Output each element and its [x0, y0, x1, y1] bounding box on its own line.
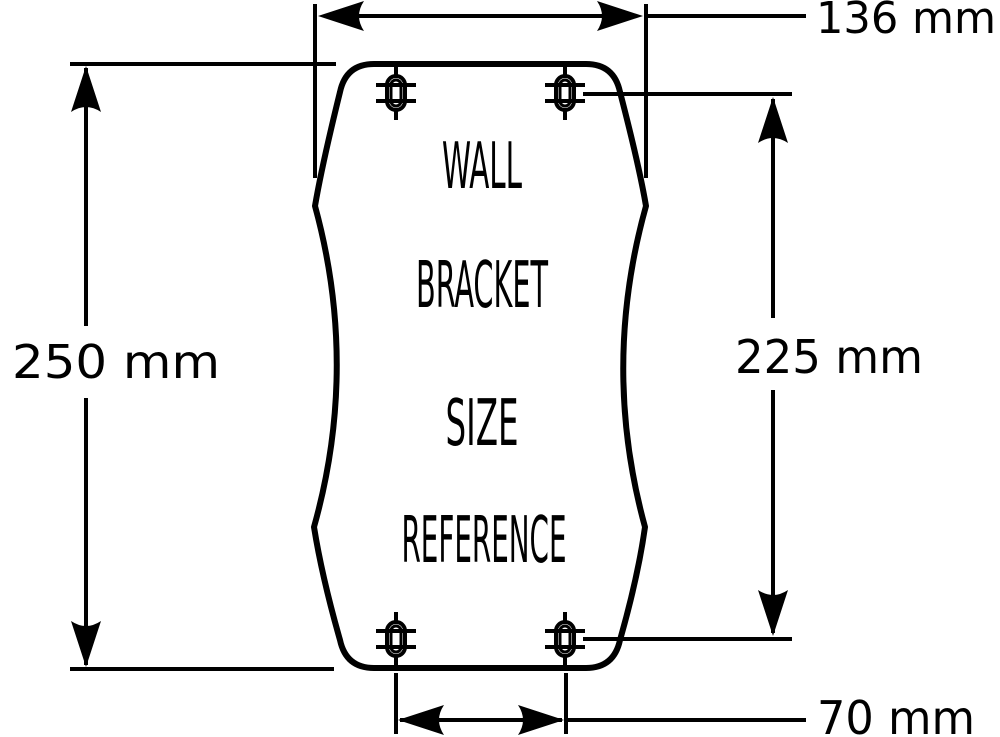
arrow-right-icon — [518, 705, 564, 735]
arrow-down-icon — [71, 621, 101, 667]
bracket-label-line-1: WALL — [442, 130, 522, 204]
technical-drawing-canvas: WALL BRACKET SIZE REFERENCE 136 mm 250 m… — [0, 0, 1000, 737]
bracket-label-line-4: REFERENCE — [402, 504, 567, 578]
arrow-left-icon — [318, 1, 364, 31]
bracket-label-line-3: SIZE — [446, 387, 519, 461]
wall-bracket-size-reference-drawing: WALL BRACKET SIZE REFERENCE 136 mm 250 m… — [0, 0, 1000, 737]
bracket-label-line-2: BRACKET — [416, 249, 548, 323]
arrow-up-icon — [758, 97, 788, 143]
dimension-label-hole-spacing-horizontal: 70 mm — [817, 691, 975, 737]
arrow-right-icon — [597, 1, 643, 31]
arrow-up-icon — [71, 66, 101, 112]
dimension-overall-height: 250 mm — [12, 64, 336, 669]
arrow-left-icon — [398, 705, 444, 735]
dimension-label-overall-height: 250 mm — [12, 335, 220, 389]
dimension-hole-spacing-horizontal: 70 mm — [396, 673, 975, 737]
dimension-label-overall-width: 136 mm — [816, 0, 996, 44]
arrow-down-icon — [758, 590, 788, 636]
dimension-label-hole-spacing-vertical: 225 mm — [735, 330, 923, 384]
